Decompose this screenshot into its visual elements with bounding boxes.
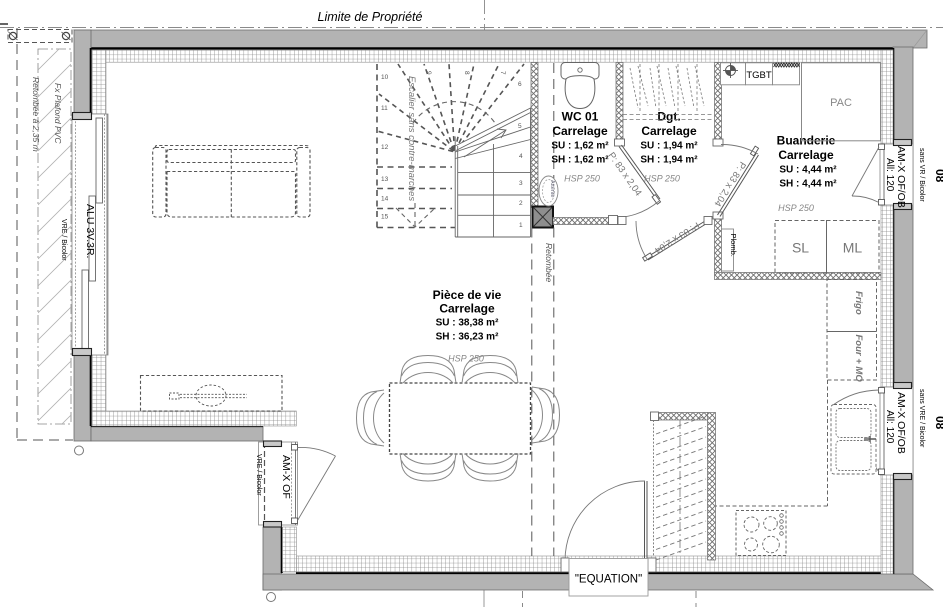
svg-text:14: 14 bbox=[381, 196, 389, 203]
svg-text:Escalier sans contre-marches: Escalier sans contre-marches bbox=[406, 76, 417, 201]
svg-text:4: 4 bbox=[519, 153, 523, 160]
svg-text:TGBT: TGBT bbox=[746, 70, 772, 81]
svg-text:All: 120: All: 120 bbox=[884, 158, 895, 192]
svg-text:sans VRE / Bicolor: sans VRE / Bicolor bbox=[918, 389, 925, 448]
svg-text:6: 6 bbox=[518, 81, 522, 88]
svg-text:Attente: Attente bbox=[549, 180, 555, 197]
svg-text:HSP 250: HSP 250 bbox=[564, 174, 600, 184]
svg-text:AM-X OF/OB: AM-X OF/OB bbox=[895, 392, 907, 454]
svg-text:08: 08 bbox=[933, 416, 943, 430]
svg-text:ALU 3V.3R.: ALU 3V.3R. bbox=[84, 204, 96, 258]
svg-text:AM-X OF/OB: AM-X OF/OB bbox=[895, 146, 907, 208]
svg-text:13: 13 bbox=[381, 176, 389, 183]
svg-text:5: 5 bbox=[518, 123, 522, 130]
svg-text:"EQUATION": "EQUATION" bbox=[575, 574, 642, 586]
svg-text:1: 1 bbox=[519, 222, 523, 229]
svg-text:Retombée à 2,35 m: Retombée à 2,35 m bbox=[31, 77, 41, 152]
svg-text:Pièce de vie: Pièce de vie bbox=[433, 288, 502, 302]
svg-text:10: 10 bbox=[381, 74, 389, 81]
svg-text:sans VR / Bicolor: sans VR / Bicolor bbox=[918, 148, 925, 202]
svg-text:Four + MO: Four + MO bbox=[853, 335, 864, 383]
svg-text:SH : 36,23 m²: SH : 36,23 m² bbox=[436, 332, 499, 343]
svg-text:Dgt.: Dgt. bbox=[657, 110, 680, 124]
svg-text:Plomb.: Plomb. bbox=[729, 234, 738, 257]
svg-text:SU : 38,38 m²: SU : 38,38 m² bbox=[436, 318, 499, 329]
svg-text:Carrelage: Carrelage bbox=[552, 124, 608, 138]
svg-text:SU : 4,44 m²: SU : 4,44 m² bbox=[779, 165, 837, 176]
svg-text:PAC: PAC bbox=[830, 97, 852, 109]
svg-text:8: 8 bbox=[463, 71, 470, 75]
svg-text:Carrelage: Carrelage bbox=[778, 148, 834, 162]
svg-text:All: 120: All: 120 bbox=[884, 410, 895, 444]
svg-text:9: 9 bbox=[425, 71, 432, 75]
svg-text:7: 7 bbox=[499, 71, 506, 75]
svg-text:Frigo: Frigo bbox=[853, 291, 864, 315]
svg-text:11: 11 bbox=[381, 105, 388, 112]
svg-text:Limite de Propriété: Limite de Propriété bbox=[318, 10, 423, 24]
svg-text:12: 12 bbox=[381, 144, 389, 151]
svg-text:15: 15 bbox=[381, 214, 389, 221]
svg-text:SH : 1,62 m²: SH : 1,62 m² bbox=[551, 155, 609, 166]
svg-text:SU : 1,62 m²: SU : 1,62 m² bbox=[551, 141, 609, 152]
svg-text:Retombée: Retombée bbox=[544, 243, 554, 282]
svg-text:SL: SL bbox=[792, 240, 809, 256]
svg-text:WC 01: WC 01 bbox=[562, 110, 599, 124]
svg-text:HSP 250: HSP 250 bbox=[644, 174, 680, 184]
svg-text:SH : 1,94 m²: SH : 1,94 m² bbox=[640, 155, 698, 166]
svg-text:VRE / Bicolor: VRE / Bicolor bbox=[255, 454, 262, 496]
svg-text:Carrelage: Carrelage bbox=[439, 302, 495, 316]
svg-text:Fx Plafond PVC: Fx Plafond PVC bbox=[53, 83, 63, 144]
svg-text:HSP 250: HSP 250 bbox=[448, 354, 484, 364]
svg-text:AM-X OF: AM-X OF bbox=[280, 455, 292, 499]
svg-text:VRE / Bicolor: VRE / Bicolor bbox=[60, 219, 67, 261]
svg-text:SH : 4,44 m²: SH : 4,44 m² bbox=[779, 179, 837, 190]
svg-text:ML: ML bbox=[843, 240, 863, 256]
svg-text:Carrelage: Carrelage bbox=[641, 124, 697, 138]
svg-text:SU : 1,94 m²: SU : 1,94 m² bbox=[640, 141, 698, 152]
svg-text:3: 3 bbox=[519, 180, 523, 187]
svg-text:HSP 250: HSP 250 bbox=[778, 203, 814, 213]
svg-text:08: 08 bbox=[933, 169, 943, 183]
svg-text:2: 2 bbox=[519, 200, 523, 207]
